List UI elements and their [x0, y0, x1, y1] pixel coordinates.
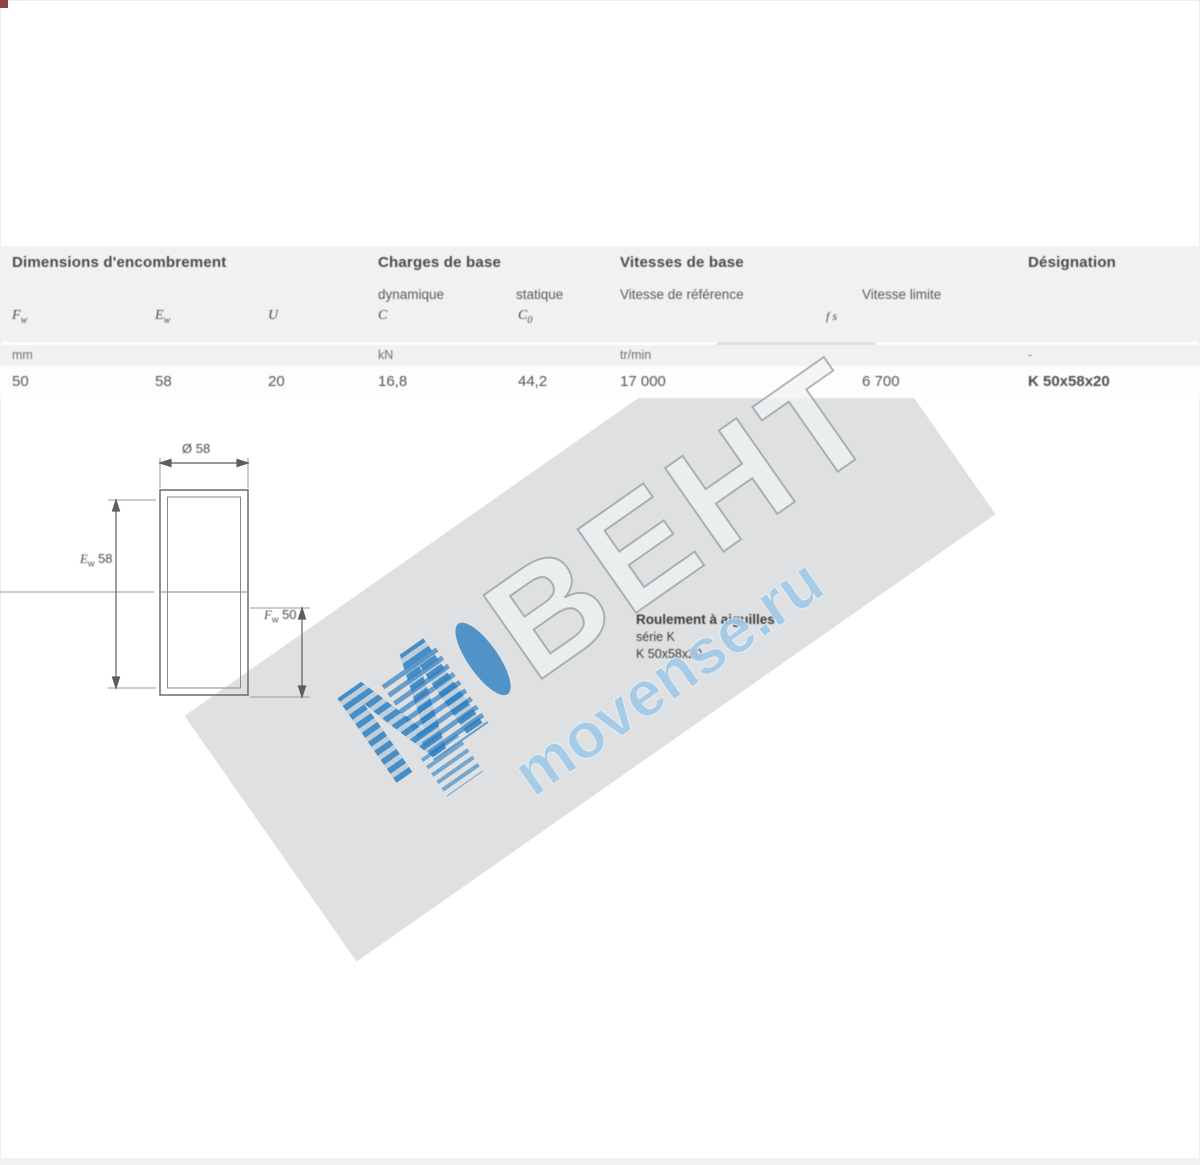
col-header-designation: Désignation: [1028, 254, 1116, 271]
symbol-u: U: [268, 308, 278, 324]
unit-designation: -: [1028, 348, 1032, 362]
dim-left-sub: w: [88, 559, 95, 569]
subheader-dynamic: dynamique: [378, 287, 444, 302]
symbol-c0-main: C: [518, 308, 527, 323]
symbol-ew-main: E: [155, 308, 164, 323]
note-line-3: K 50x58x20: [636, 647, 775, 661]
note-line-2: série K: [636, 630, 775, 644]
value-u: 20: [268, 373, 285, 390]
product-note: Roulement à aiguilles série K K 50x58x20: [636, 612, 775, 661]
value-designation: K 50x58x20: [1028, 373, 1110, 390]
dim-label-left: Ew 58: [80, 551, 113, 569]
col-header-dimensions: Dimensions d'encombrement: [12, 254, 226, 271]
dim-right-sub: w: [272, 615, 279, 625]
note-title: Roulement à aiguilles: [636, 612, 775, 627]
symbol-speed-marks: f s: [826, 309, 837, 324]
dim-label-outer-diameter: Ø 58: [182, 441, 210, 456]
col-header-loads: Charges de base: [378, 254, 501, 271]
symbol-c0: C0: [518, 308, 532, 326]
subheader-lim-speed: Vitesse limite: [862, 287, 941, 302]
symbol-fw-sub: w: [21, 315, 28, 326]
dim-left-symbol: E: [80, 551, 88, 566]
unit-speeds: tr/min: [620, 348, 651, 362]
symbol-fw: Fw: [12, 308, 27, 326]
symbol-c0-sub: 0: [527, 315, 532, 326]
value-fw: 50: [12, 373, 29, 390]
bearing-cross-section-drawing: [0, 430, 380, 730]
symbol-c: C: [378, 308, 387, 324]
symbol-fw-main: F: [12, 308, 21, 323]
dim-left-value: 58: [98, 551, 112, 566]
dim-right-value: 50: [282, 607, 296, 622]
table-units-band: [0, 345, 1200, 366]
value-ref-speed: 17 000: [620, 373, 666, 390]
value-c: 16,8: [378, 373, 407, 390]
value-c0: 44,2: [518, 373, 547, 390]
unit-dimensions: mm: [12, 348, 33, 362]
bottom-edge-strip: [0, 1158, 1200, 1165]
table-data-band: [0, 366, 1200, 398]
value-ew: 58: [155, 373, 172, 390]
spec-table: Dimensions d'encombrement Charges de bas…: [0, 0, 1200, 420]
subheader-static: statique: [516, 287, 563, 302]
dim-label-right: Fw 50: [264, 607, 297, 625]
unit-loads: kN: [378, 348, 393, 362]
col-header-speeds: Vitesses de base: [620, 254, 744, 271]
subheader-ref-speed: Vitesse de référence: [620, 287, 744, 302]
symbol-ew-sub: w: [164, 315, 171, 326]
symbol-ew: Ew: [155, 308, 170, 326]
value-lim-speed: 6 700: [862, 373, 900, 390]
dim-right-symbol: F: [264, 607, 272, 622]
